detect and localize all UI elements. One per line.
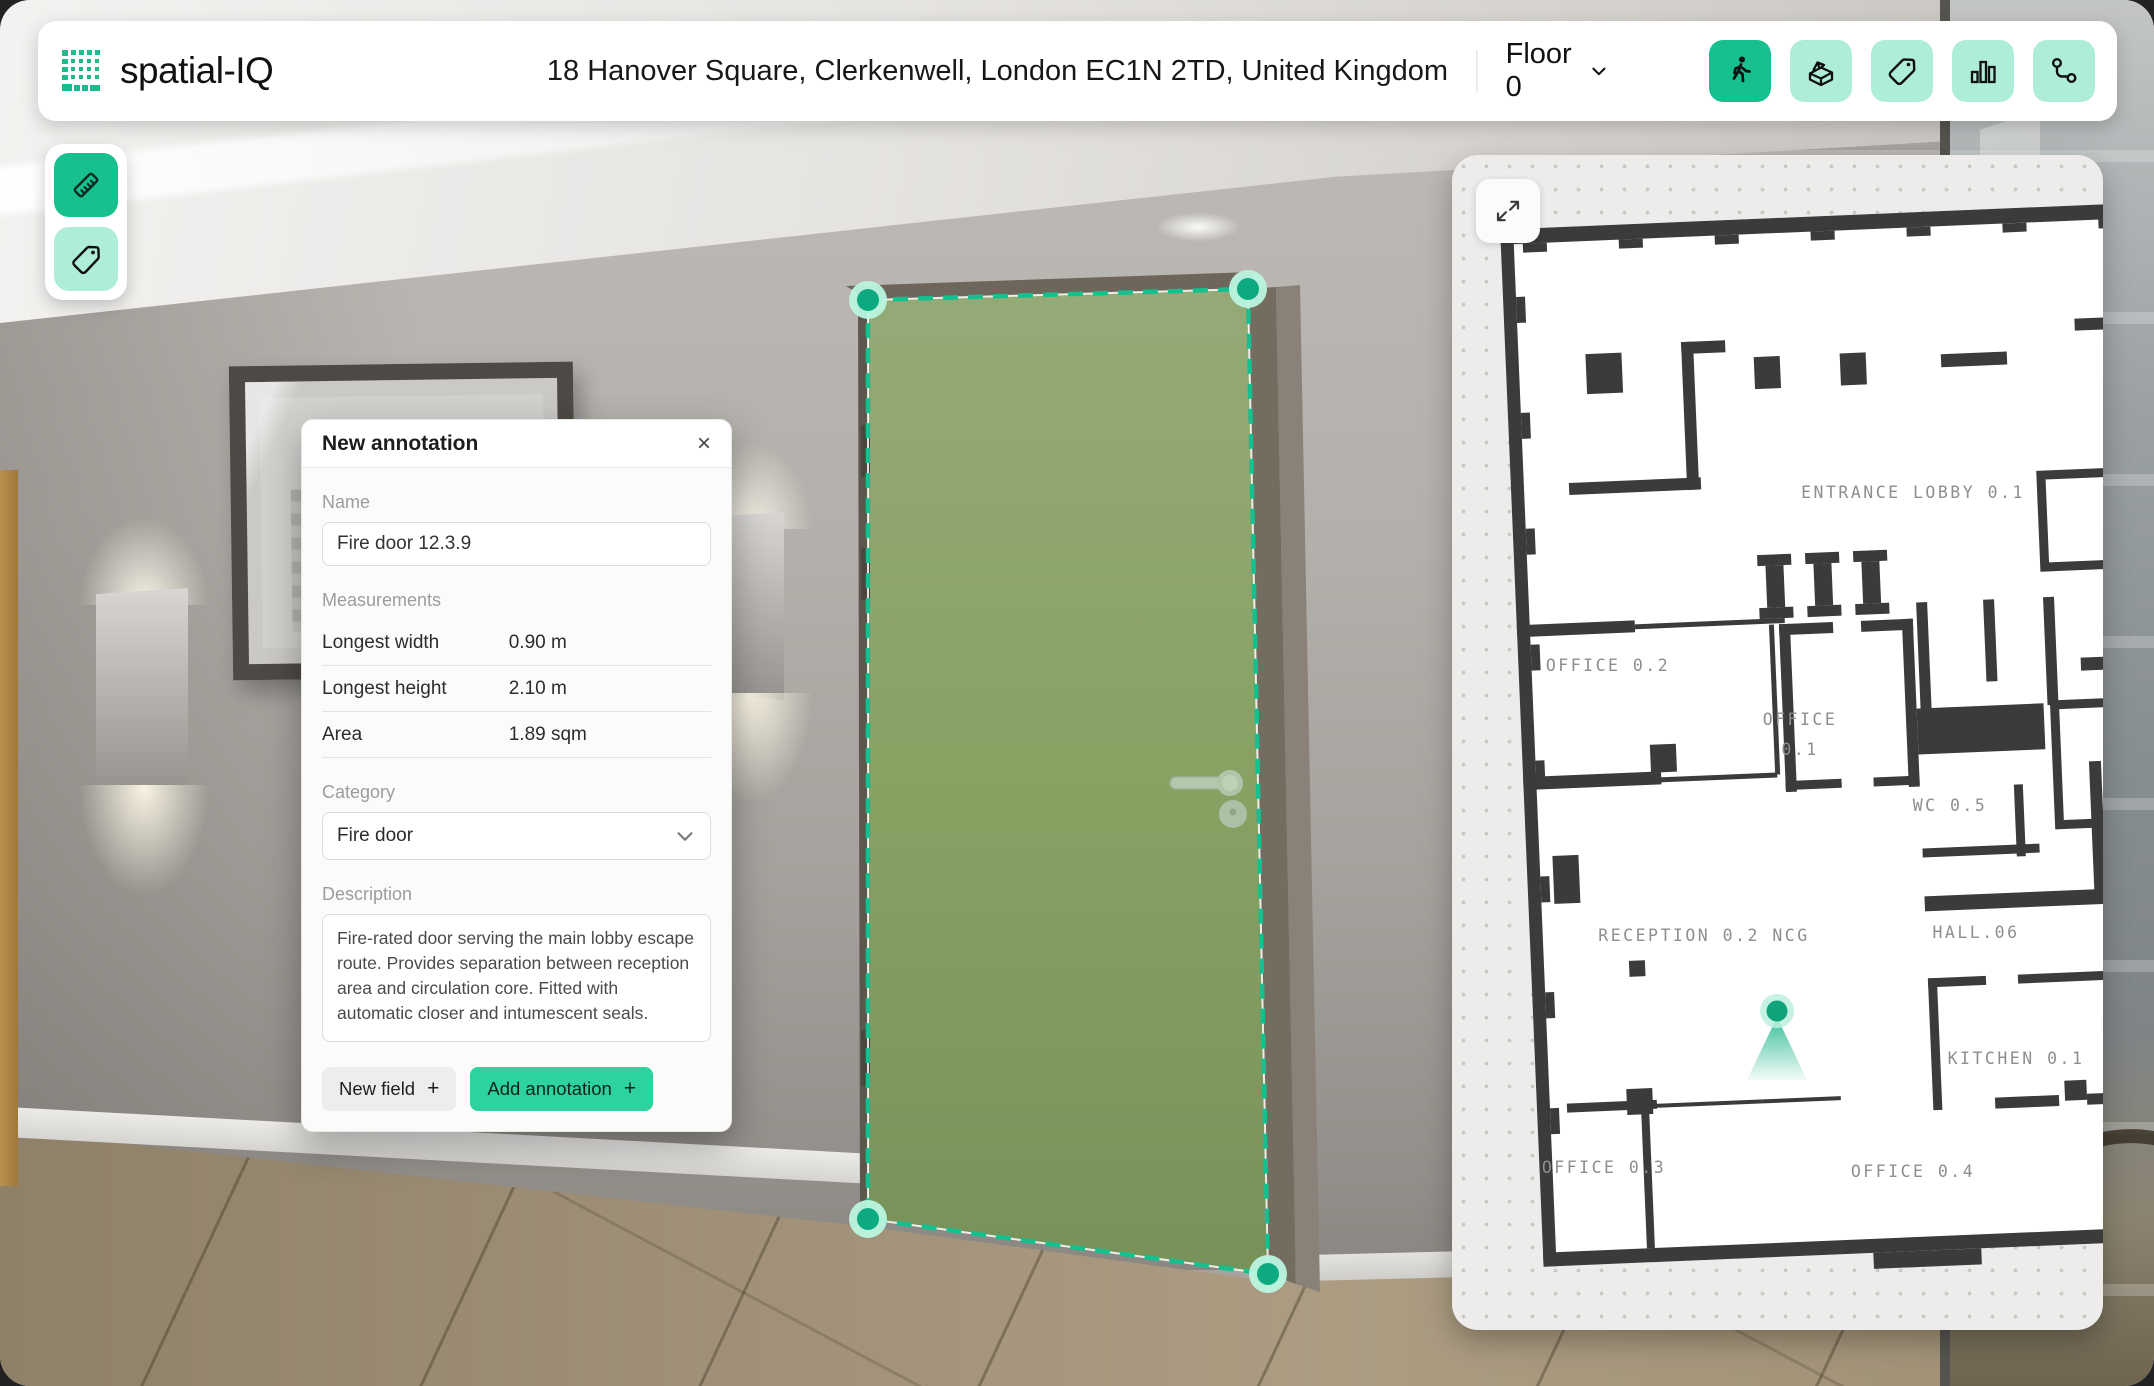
name-label: Name (322, 492, 711, 513)
plus-icon: + (427, 1077, 439, 1101)
annotation-panel-header: New annotation × (302, 420, 731, 468)
annotation-panel: New annotation × Name Measurements Longe… (301, 419, 732, 1132)
measurements-label: Measurements (322, 590, 711, 611)
selection-handle-bottom-right[interactable] (1249, 1255, 1287, 1293)
room-label: WC 0.5 (1913, 796, 1988, 815)
measurement-value: 2.10 m (509, 678, 567, 700)
annotate-tool-button[interactable] (54, 227, 118, 291)
room-label: ENTRANCE LOBBY 0.1 (1801, 483, 2025, 502)
panel-actions: New field + Add annotation + (322, 1067, 711, 1111)
floorplan-drawing: ENTRANCE LOBBY 0.1 OFFICE 0.2 OFFICE 0.1… (1452, 155, 2103, 1330)
property-address: 18 Hanover Square, Clerkenwell, London E… (547, 55, 1448, 88)
header-divider (1476, 50, 1478, 92)
measurement-value: 0.90 m (509, 632, 567, 654)
spatial-iq-logo-icon (60, 48, 106, 94)
walk-mode-button[interactable] (1709, 40, 1771, 102)
3d-model-button[interactable] (1790, 40, 1852, 102)
room-label: 0.1 (1781, 740, 1818, 759)
measure-tool-button[interactable] (54, 153, 118, 217)
annotation-panel-body: Name Measurements Longest width 0.90 m L… (302, 468, 731, 1131)
floorplan-minimap[interactable]: ENTRANCE LOBBY 0.1 OFFICE 0.2 OFFICE 0.1… (1452, 155, 2103, 1330)
room-label: OFFICE 0.2 (1546, 656, 1670, 675)
annotations-button[interactable] (1871, 40, 1933, 102)
room-label: OFFICE 0.3 (1542, 1158, 1666, 1177)
add-annotation-button[interactable]: Add annotation + (470, 1067, 653, 1111)
header-center: 18 Hanover Square, Clerkenwell, London E… (547, 38, 1608, 104)
measurement-row: Longest width 0.90 m (322, 620, 711, 666)
node-graph-icon (2047, 54, 2081, 88)
panel-title: New annotation (322, 432, 478, 456)
ruler-icon (68, 167, 104, 203)
header-bar: spatial-IQ 18 Hanover Square, Clerkenwel… (38, 21, 2117, 121)
floor-selector[interactable]: Floor 0 (1506, 38, 1608, 104)
measurement-value: 1.89 sqm (509, 724, 587, 746)
expand-icon (1488, 191, 1528, 231)
category-value: Fire door (337, 825, 413, 847)
room-label: HALL.06 (1932, 923, 2019, 942)
tag-icon (1885, 54, 1919, 88)
brand-name: spatial-IQ (120, 50, 273, 92)
header-tools (1709, 40, 2095, 102)
walking-person-icon (1723, 54, 1757, 88)
side-toolbar (45, 144, 127, 300)
3d-box-icon (1804, 54, 1838, 88)
selection-handle-top-right[interactable] (1229, 270, 1267, 308)
close-icon[interactable]: × (697, 432, 711, 456)
selection-handle-bottom-left[interactable] (849, 1200, 887, 1238)
category-label: Category (322, 782, 711, 803)
room-label: KITCHEN 0.1 (1948, 1049, 2085, 1068)
floor-selector-label: Floor 0 (1506, 38, 1577, 104)
measurement-row: Area 1.89 sqm (322, 712, 711, 758)
measurement-row: Longest height 2.10 m (322, 666, 711, 712)
room-label: OFFICE (1763, 710, 1838, 729)
plus-icon: + (624, 1077, 636, 1101)
tag-icon (68, 241, 104, 277)
graph-view-button[interactable] (2033, 40, 2095, 102)
category-select[interactable]: Fire door (322, 812, 711, 860)
room-label: RECEPTION 0.2 NCG (1598, 926, 1809, 945)
description-label: Description (322, 884, 711, 905)
bar-chart-icon (1966, 54, 2000, 88)
chevron-down-icon (1589, 59, 1608, 83)
expand-floorplan-button[interactable] (1476, 179, 1540, 243)
room-label: OFFICE 0.4 (1851, 1162, 1975, 1181)
brand: spatial-IQ (60, 48, 273, 94)
new-field-button[interactable]: New field + (322, 1067, 456, 1111)
selection-handle-top-left[interactable] (849, 281, 887, 319)
description-textarea[interactable]: Fire-rated door serving the main lobby e… (322, 914, 711, 1042)
app-canvas: spatial-IQ 18 Hanover Square, Clerkenwel… (0, 0, 2154, 1386)
statistics-button[interactable] (1952, 40, 2014, 102)
name-input[interactable] (322, 522, 711, 566)
chevron-down-icon (674, 825, 696, 847)
